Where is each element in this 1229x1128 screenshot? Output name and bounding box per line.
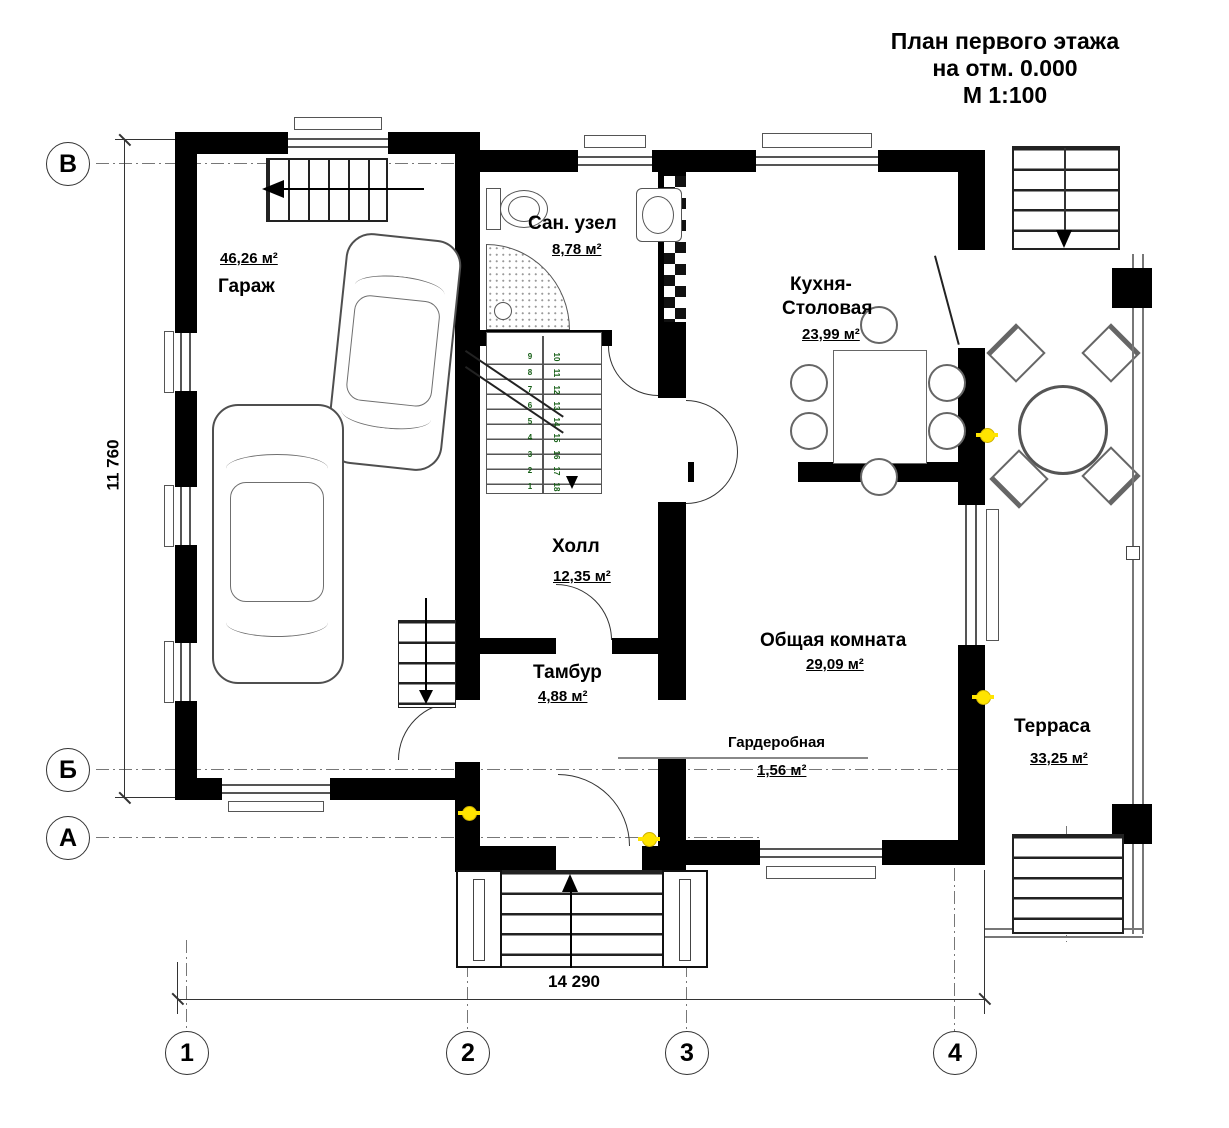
garage-upper-stair	[266, 158, 388, 222]
door-arc-entrance	[558, 774, 630, 846]
dim-line-horizontal	[178, 999, 985, 1000]
garage-label: Гараж	[218, 276, 275, 298]
dim-text-horizontal: 14 290	[548, 972, 600, 992]
terrace-column	[1112, 268, 1152, 308]
title-line-2: на отм. 0.000	[845, 55, 1165, 82]
living-label: Общая комната	[760, 630, 906, 652]
porch-column-right	[662, 870, 708, 968]
title-line-3: М 1:100	[845, 82, 1165, 109]
terrace-stairs-top-arrow	[1056, 230, 1072, 248]
wall-light-icon	[980, 428, 995, 443]
dining-chair	[790, 412, 828, 450]
car-left	[212, 404, 344, 684]
garage-small-stair-line	[425, 598, 427, 692]
terrace-area: 33,25 м²	[1030, 750, 1088, 767]
window-sill	[164, 331, 174, 393]
garage-stair-arrow-line	[284, 188, 424, 190]
living-area: 29,09 м²	[806, 656, 864, 673]
dim-ext-line	[177, 962, 178, 1014]
window-sill	[584, 135, 646, 148]
window-sill	[986, 509, 999, 641]
garage-stair-arrow	[262, 180, 284, 198]
dining-chair	[860, 458, 898, 496]
window-living-bottom	[760, 840, 882, 865]
door-gap-garage	[455, 700, 480, 762]
door-gap-hall-kitchen	[656, 398, 688, 502]
window-garage-top	[288, 132, 388, 154]
wall-light-icon	[642, 832, 657, 847]
axis-line-col-1	[186, 940, 187, 1031]
floor-plan: План первого этажа на отм. 0.000 М 1:100…	[0, 0, 1229, 1128]
door-arc-kitchen-2	[686, 452, 738, 504]
window-kitchen-top	[756, 150, 878, 172]
stair-numbers-left: 987 654 321	[522, 352, 538, 492]
axis-label-2: 2	[461, 1039, 475, 1068]
axis-bubble-b: Б	[46, 748, 90, 792]
axis-bubble-4: 4	[933, 1031, 977, 1075]
terrace-label: Терраса	[1014, 716, 1090, 738]
car-right	[324, 231, 464, 474]
kitchen-label-1: Кухня-	[790, 274, 852, 296]
bathroom-area: 8,78 м²	[552, 241, 601, 258]
wardrobe-leader-line	[618, 757, 868, 759]
door-leaf-terrace	[934, 255, 960, 344]
door-arc-garage	[398, 702, 456, 760]
dim-text-vertical: 11 760	[104, 439, 124, 490]
garage-area: 46,26 м²	[220, 250, 278, 267]
hall-area: 12,35 м²	[553, 568, 611, 585]
door-arc-tambour-hall	[556, 584, 612, 640]
wall-tambour-top-a	[480, 638, 556, 654]
window-sill	[766, 866, 876, 879]
axis-label-v: В	[59, 150, 77, 179]
window-living-right	[958, 505, 985, 645]
drawing-title: План первого этажа на отм. 0.000 М 1:100	[845, 28, 1165, 109]
window-garage-bottom	[222, 778, 330, 800]
dim-ext-line	[984, 870, 985, 1014]
stair-walk-arrow	[566, 476, 578, 489]
railing-post	[1126, 546, 1140, 560]
axis-label-4: 4	[948, 1039, 962, 1068]
axis-label-1: 1	[180, 1039, 194, 1068]
garage-small-stair-arrow	[419, 690, 433, 704]
dining-chair	[928, 364, 966, 402]
window-sill	[294, 117, 382, 130]
window-sill	[164, 485, 174, 547]
window-sill	[762, 133, 872, 148]
stair-numbers-right: 1011 1213 1415 1617 18	[548, 352, 564, 492]
window-stair-top	[578, 150, 652, 172]
shower-drain	[494, 302, 512, 320]
axis-line-col-4	[954, 868, 955, 1031]
door-gap-terrace	[958, 250, 985, 348]
porch-arrow	[562, 874, 578, 892]
terrace-chair	[986, 323, 1045, 382]
dining-table	[833, 350, 927, 464]
dining-chair	[928, 412, 966, 450]
wall-tambour-top-b	[612, 638, 658, 654]
porch-stairs	[502, 870, 662, 968]
hall-label: Холл	[552, 536, 600, 558]
axis-bubble-3: 3	[665, 1031, 709, 1075]
stair-divider	[542, 336, 544, 494]
wall-top	[455, 150, 985, 172]
terrace-edge-bottom-2	[985, 936, 1143, 938]
axis-label-3: 3	[680, 1039, 694, 1068]
wall-light-icon	[976, 690, 991, 705]
door-gap-hall-living	[658, 700, 686, 758]
wall-light-icon	[462, 806, 477, 821]
toilet-tank	[486, 188, 501, 230]
window-garage-left-1	[175, 333, 197, 391]
porch-arrow-line	[570, 888, 572, 968]
porch-column-left	[456, 870, 502, 968]
door-arc-kitchen-1	[686, 400, 738, 452]
tambour-area: 4,88 м²	[538, 688, 587, 705]
window-garage-left-3	[175, 643, 197, 701]
title-line-1: План первого этажа	[845, 28, 1165, 55]
wardrobe-label: Гардеробная	[728, 734, 825, 751]
terrace-stairs-bottom	[1012, 834, 1124, 934]
axis-bubble-2: 2	[446, 1031, 490, 1075]
sink-basin	[642, 196, 674, 234]
dining-chair	[790, 364, 828, 402]
terrace-stairs-top-line	[1064, 148, 1066, 236]
kitchen-area: 23,99 м²	[802, 326, 860, 343]
bathroom-label: Сан. узел	[528, 213, 617, 235]
axis-bubble-a: А	[46, 816, 90, 860]
tambour-label: Тамбур	[533, 662, 602, 684]
window-sill	[164, 641, 174, 703]
axis-line-b-row	[96, 769, 985, 770]
kitchen-label-2: Столовая	[782, 298, 872, 320]
dim-line-vertical	[124, 140, 125, 798]
stair-treads	[486, 350, 602, 494]
axis-label-a: А	[59, 824, 77, 853]
axis-bubble-1: 1	[165, 1031, 209, 1075]
axis-label-b: Б	[59, 756, 77, 785]
wardrobe-area: 1,56 м²	[757, 762, 806, 779]
window-garage-left-2	[175, 487, 197, 545]
window-sill	[228, 801, 324, 812]
axis-bubble-v: В	[46, 142, 90, 186]
door-arc-bathroom	[608, 346, 658, 396]
